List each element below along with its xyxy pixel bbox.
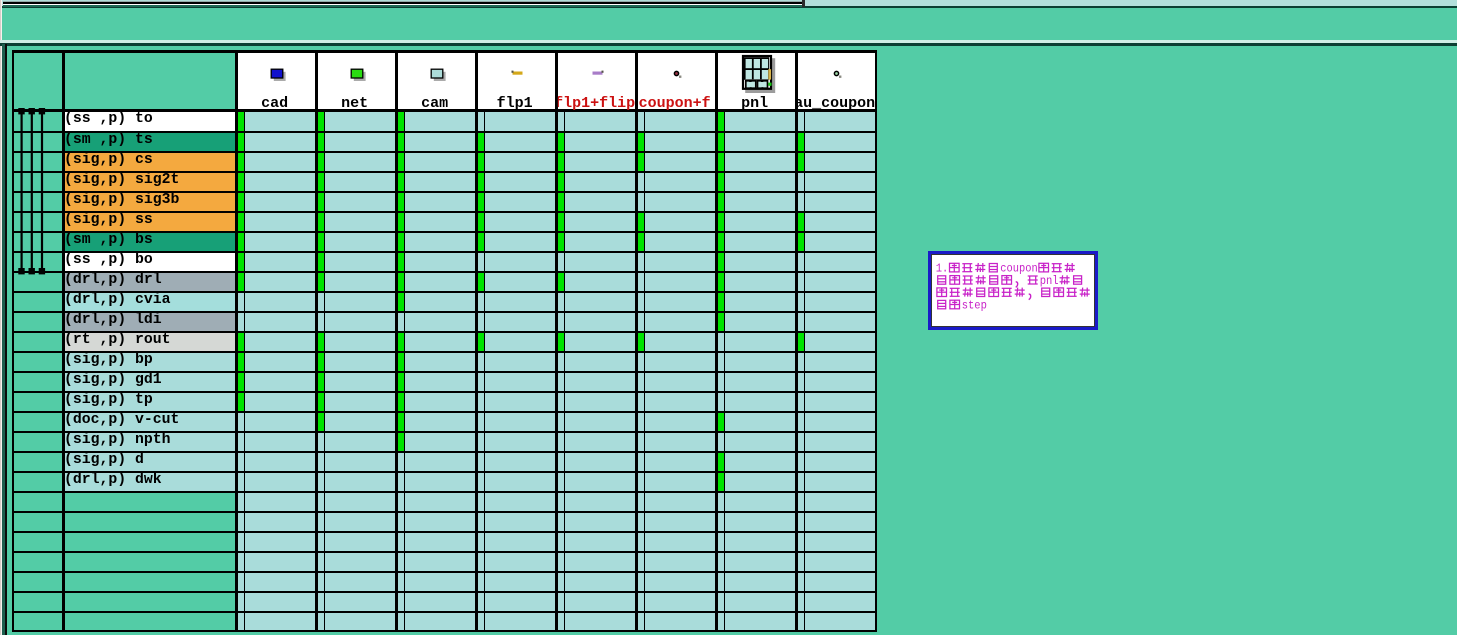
svg-text:coupon: coupon — [1000, 262, 1037, 276]
svg-text:pnl: pnl — [1040, 274, 1059, 288]
svg-text:step: step — [962, 298, 987, 312]
svg-text:1.: 1. — [936, 262, 949, 276]
